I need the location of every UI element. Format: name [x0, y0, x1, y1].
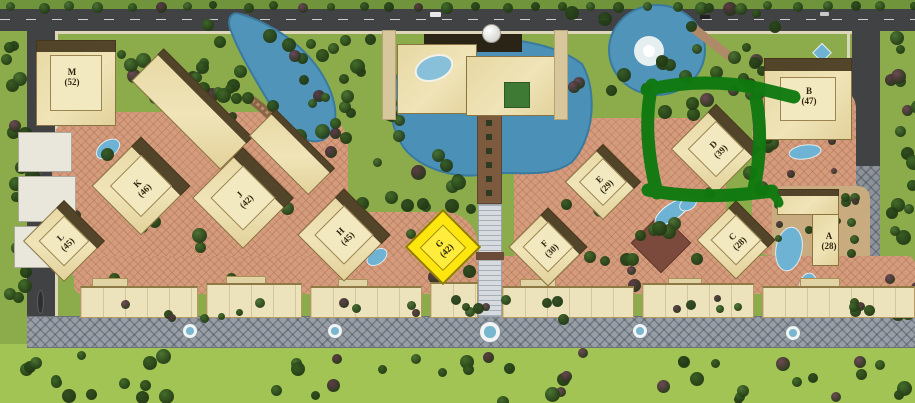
tree: [664, 59, 676, 71]
tree: [289, 50, 301, 62]
tree: [340, 35, 351, 46]
tree: [339, 74, 349, 84]
tree: [568, 81, 580, 93]
car: [820, 12, 829, 16]
tree: [411, 165, 426, 180]
axis-planter: [486, 162, 492, 168]
retail-block: [642, 283, 754, 318]
tree: [225, 84, 235, 94]
tree: [452, 174, 464, 186]
car: [240, 14, 249, 18]
tree: [891, 198, 905, 212]
promenade-fountain: [479, 321, 501, 343]
tree: [606, 85, 617, 96]
tree: [904, 204, 914, 214]
tree: [728, 85, 739, 96]
tree: [911, 100, 915, 114]
building-a-bar: [777, 189, 839, 215]
tree: [316, 49, 329, 62]
tree: [440, 159, 453, 172]
tree: [890, 226, 900, 236]
top-road-centerline: [0, 19, 915, 20]
tree: [234, 65, 247, 78]
tree: [117, 50, 126, 59]
right-road-upper: [852, 24, 880, 166]
retail-block: [430, 282, 478, 318]
tree: [656, 56, 670, 70]
tree: [728, 51, 741, 64]
top-road: [0, 9, 915, 31]
tree: [891, 69, 906, 84]
retail-block: [502, 286, 634, 318]
tree: [901, 147, 914, 160]
tree: [199, 58, 209, 68]
axis-water-channel: [478, 204, 502, 317]
promenade-fountain: [182, 323, 198, 339]
clubhouse-dome: [482, 24, 501, 43]
tree: [700, 93, 714, 107]
retail-block: [80, 286, 198, 318]
tree: [282, 38, 296, 52]
axis-planter: [486, 148, 492, 154]
tree: [124, 58, 138, 72]
tree: [641, 83, 651, 93]
tree: [242, 92, 254, 104]
car: [430, 12, 441, 17]
axis-planter: [486, 134, 492, 140]
tree: [417, 198, 429, 210]
retail-block: [310, 286, 422, 318]
tree: [4, 288, 16, 300]
tree: [196, 61, 209, 74]
lake-fountain-spray: [634, 36, 664, 66]
tree: [432, 149, 445, 162]
clubhouse-roof-garden: [504, 82, 530, 108]
tree: [750, 54, 763, 67]
clubhouse-path-west: [382, 30, 396, 120]
tree: [679, 70, 692, 83]
tree: [393, 130, 405, 142]
tree: [9, 41, 19, 51]
tree: [1, 54, 12, 65]
bottom-lawn: [0, 344, 915, 403]
tree: [656, 55, 668, 67]
tree: [642, 83, 652, 93]
tree: [6, 79, 19, 92]
tree: [896, 230, 911, 245]
retail-block: [206, 283, 302, 318]
tree: [373, 158, 382, 167]
promenade-fountain: [785, 325, 801, 341]
tree: [9, 120, 21, 132]
road-median: [37, 290, 44, 314]
tree: [213, 87, 223, 97]
tree: [339, 101, 351, 113]
axis-planter: [486, 190, 492, 196]
tree: [466, 204, 476, 214]
tree: [742, 43, 751, 52]
tree: [617, 68, 631, 82]
promenade-fountain: [327, 323, 343, 339]
tree: [321, 93, 330, 102]
tree: [451, 175, 466, 190]
tree: [744, 78, 756, 90]
tree: [4, 42, 15, 53]
axis-planter: [486, 176, 492, 182]
tree: [297, 53, 308, 64]
clubhouse-path-east: [554, 30, 568, 120]
tree: [895, 126, 906, 137]
tree: [385, 191, 398, 204]
top-green-strip: [0, 0, 915, 9]
tree: [886, 207, 898, 219]
tree: [313, 90, 325, 102]
axis-planter: [486, 120, 492, 126]
tree: [692, 44, 702, 54]
tree: [214, 36, 226, 48]
tree: [346, 108, 356, 118]
lake-fountain-core: [643, 45, 655, 57]
tree: [885, 74, 897, 86]
site-plan-map: M(52) L(45) K(46) J(42) H(45) G(42) F(30…: [0, 0, 915, 403]
building-label-b: B(47): [802, 86, 817, 106]
tree: [341, 90, 354, 103]
tree: [902, 105, 913, 116]
tree: [306, 39, 316, 49]
tree: [308, 99, 317, 108]
tree: [13, 292, 24, 303]
tree: [328, 43, 339, 54]
tree: [895, 76, 906, 87]
tree: [738, 73, 749, 84]
tree: [749, 57, 761, 69]
tree: [906, 155, 915, 170]
tree: [299, 75, 309, 85]
tree: [890, 31, 904, 45]
tree: [896, 45, 905, 54]
tree: [907, 180, 915, 191]
tree: [401, 199, 414, 212]
tree: [573, 77, 585, 89]
car: [700, 15, 710, 19]
south-promenade: [27, 316, 915, 348]
sports-court: [18, 132, 72, 172]
retail-block: [762, 286, 915, 318]
tree: [216, 88, 231, 103]
promenade-fountain: [632, 323, 648, 339]
tree: [356, 67, 366, 77]
tree: [227, 79, 240, 92]
tree: [710, 66, 723, 79]
tree: [231, 93, 242, 104]
tree: [13, 72, 27, 86]
axis-channel-deck: [476, 252, 504, 260]
tree: [686, 97, 699, 110]
building-label-m: M(52): [65, 67, 80, 87]
tree: [421, 202, 431, 212]
tree: [446, 180, 459, 193]
tree: [365, 34, 376, 45]
tree: [350, 59, 365, 74]
building-label-a: A(28): [822, 231, 837, 251]
